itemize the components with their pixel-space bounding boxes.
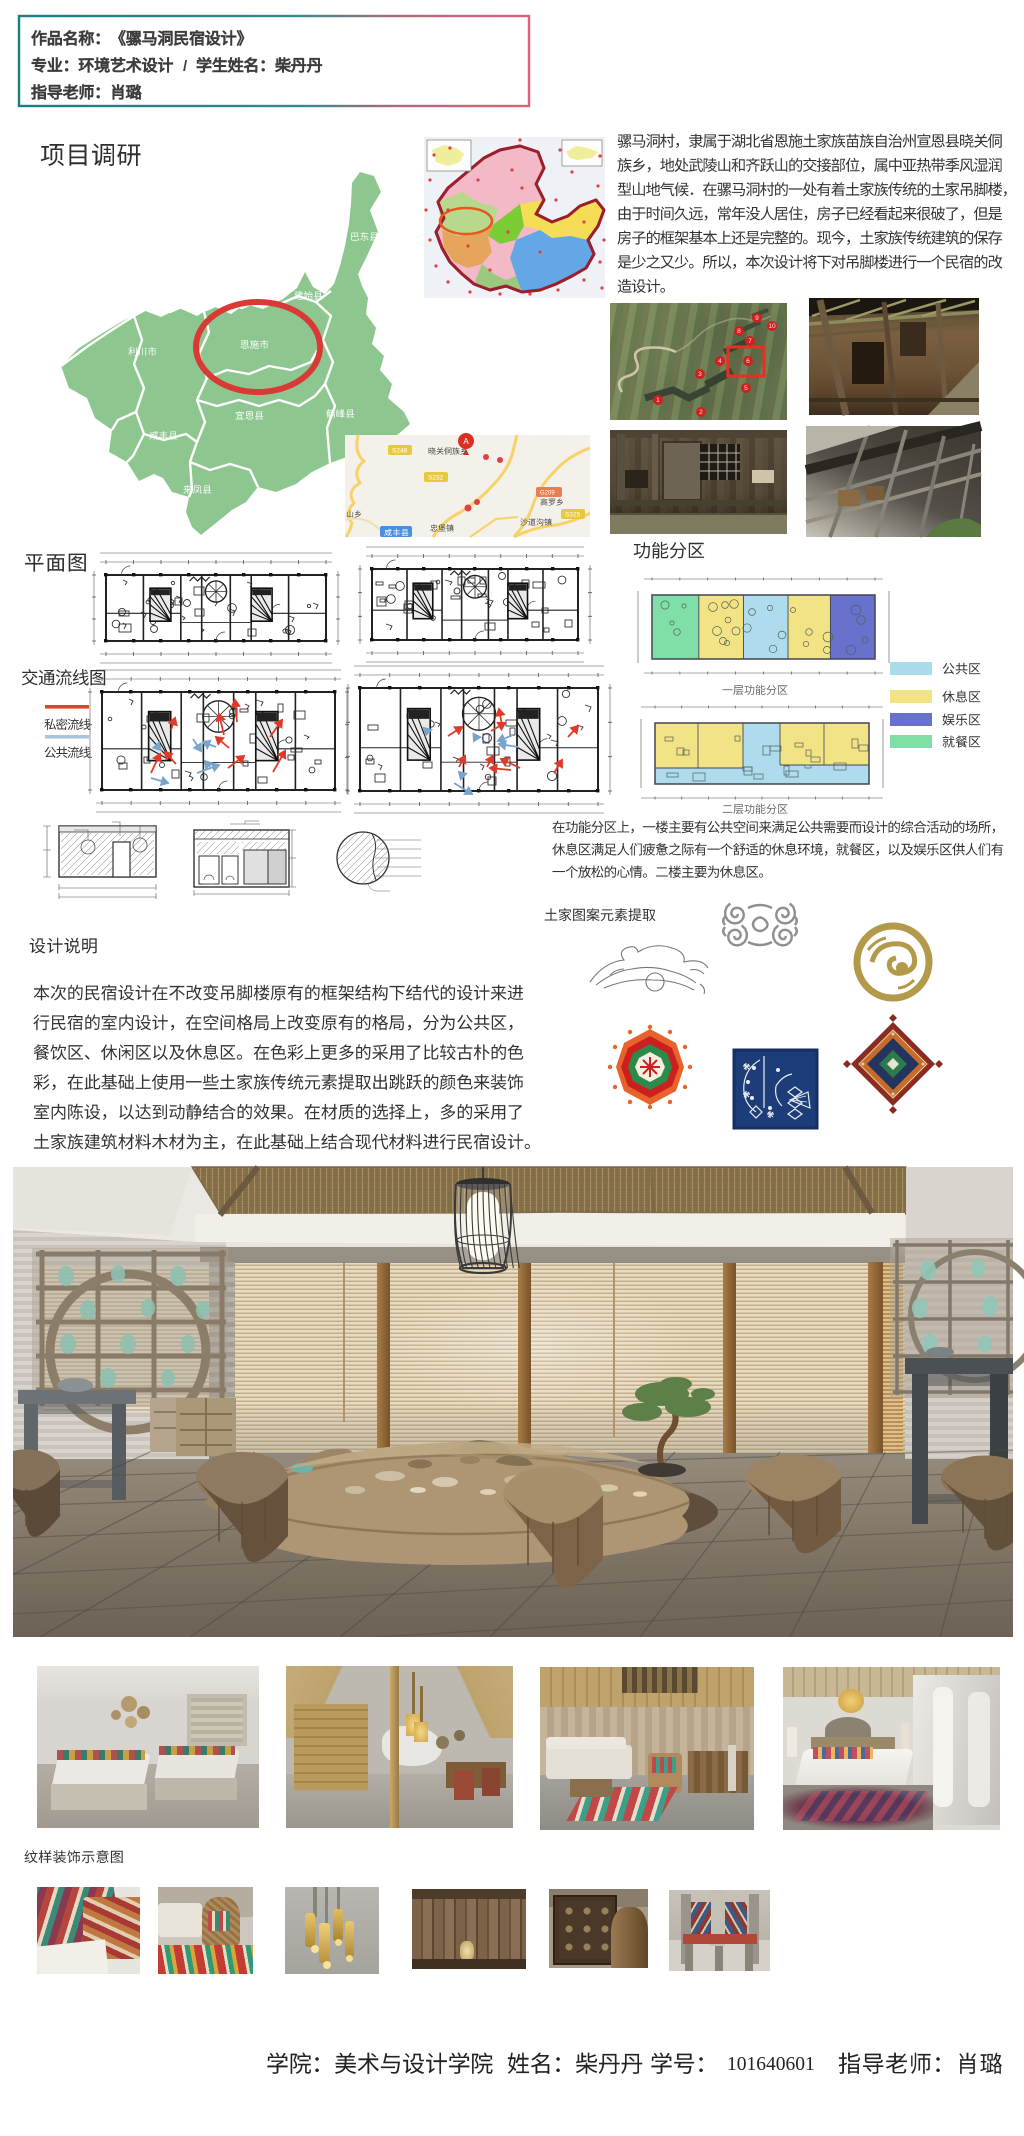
svg-text:1: 1: [656, 397, 660, 404]
svg-text:6: 6: [746, 358, 750, 365]
svg-text:9: 9: [755, 315, 759, 322]
svg-text:S232: S232: [428, 475, 444, 482]
svg-text:10: 10: [768, 323, 776, 330]
svg-text:8: 8: [737, 328, 741, 335]
svg-text:G209: G209: [540, 491, 555, 497]
svg-text:101640601: 101640601: [727, 2054, 815, 2075]
svg-text:4: 4: [718, 358, 722, 365]
svg-text:3: 3: [698, 371, 702, 378]
svg-text:S325: S325: [565, 512, 581, 519]
svg-text:S248: S248: [392, 448, 408, 455]
svg-text:2: 2: [699, 409, 703, 416]
svg-text:7: 7: [748, 338, 752, 345]
svg-text:A: A: [463, 437, 469, 446]
svg-text:5: 5: [744, 385, 748, 392]
svg-text:/: /: [183, 58, 188, 75]
